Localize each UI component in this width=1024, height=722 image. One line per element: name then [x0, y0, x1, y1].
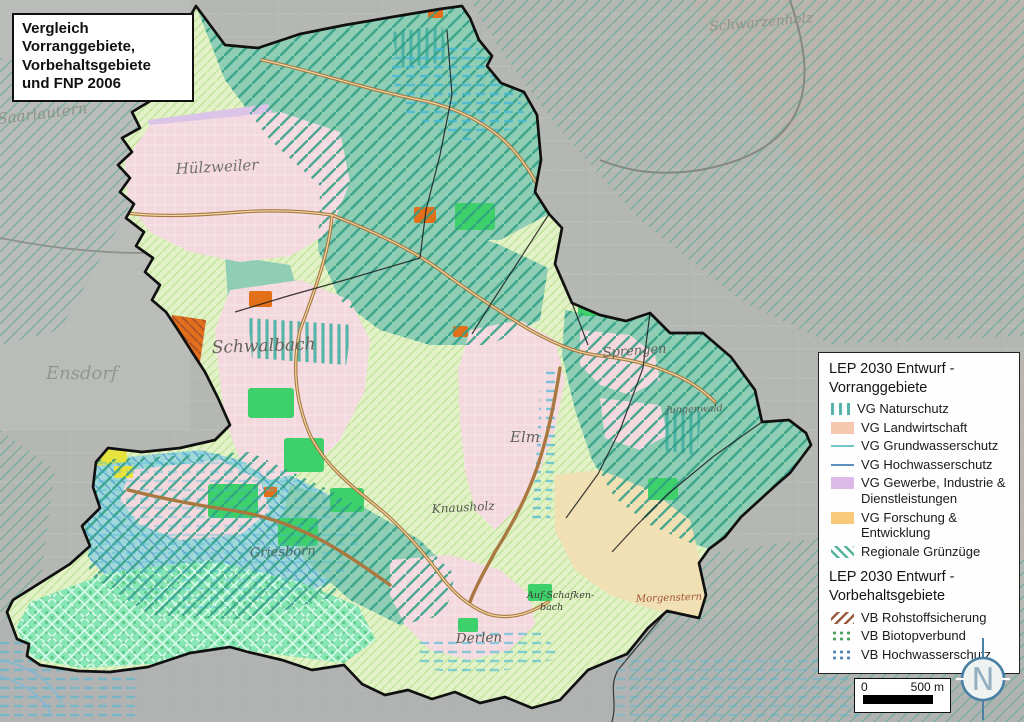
legend-item-label: VG Hochwasserschutz	[861, 457, 993, 473]
legend-item-label: Regionale Grünzüge	[861, 544, 980, 560]
map-place-label: Jungenwald	[664, 403, 723, 416]
map-place-label: Derlen	[455, 629, 503, 647]
legend-swatch-icon	[831, 512, 854, 524]
map-place-label: bach	[540, 602, 563, 613]
map-place-label: Griesborn	[250, 544, 316, 561]
legend: LEP 2030 Entwurf - Vorranggebiete VG Nat…	[818, 352, 1020, 674]
map-place-label: Auf-Schafken-	[526, 590, 594, 601]
map-place-label: Schwalbach	[211, 334, 315, 358]
north-letter: N	[971, 662, 994, 698]
north-arrow: N	[947, 636, 1019, 722]
scale-bar-rule	[863, 695, 933, 704]
legend-section-title: LEP 2030 Entwurf - Vorbehaltsgebiete	[829, 568, 1011, 605]
legend-item-label: VG Grundwasserschutz	[861, 438, 998, 454]
legend-swatch-icon	[831, 630, 854, 642]
legend-item-regionale-gruenzuege: Regionale Grünzüge	[829, 544, 1011, 560]
map-place-label: Elm	[509, 428, 540, 446]
legend-item-label: VG Naturschutz	[857, 401, 949, 417]
map-document: SaarlauternSchwarzenholzEnsdorfHülzweile…	[0, 0, 1024, 722]
legend-item-vg-gewerbe: VG Gewerbe, Industrie & Dienstleistungen	[829, 475, 1011, 506]
map-title-line: Vergleich	[22, 20, 184, 38]
legend-section-title: LEP 2030 Entwurf - Vorranggebiete	[829, 360, 1011, 397]
scale-end-label: 500 m	[911, 680, 944, 694]
legend-item-vb-rohstoffsicherung: VB Rohstoffsicherung	[829, 610, 1011, 626]
scale-start-label: 0	[861, 680, 868, 694]
legend-item-label: VG Gewerbe, Industrie & Dienstleistungen	[861, 475, 1011, 506]
legend-item-vg-hochwasserschutz: VG Hochwasserschutz	[829, 457, 1011, 473]
legend-item-label: VB Rohstoffsicherung	[861, 610, 987, 626]
legend-swatch-icon	[831, 546, 854, 558]
legend-item-vg-grundwasserschutz: VG Grundwasserschutz	[829, 438, 1011, 454]
legend-item-vg-forschung: VG Forschung & Entwicklung	[829, 510, 1011, 541]
map-place-label: Morgenstern	[635, 592, 702, 605]
map-place-label: Ensdorf	[45, 363, 121, 384]
map-title-box: Vergleich Vorranggebiete, Vorbehaltsgebi…	[12, 13, 194, 102]
legend-swatch-icon	[831, 422, 854, 434]
scale-bar: 0 500 m	[854, 678, 951, 713]
legend-item-label: VG Forschung & Entwicklung	[861, 510, 1011, 541]
legend-swatch-icon	[831, 477, 854, 489]
legend-item-vg-landwirtschaft: VG Landwirtschaft	[829, 420, 1011, 436]
legend-swatch-icon	[831, 612, 854, 624]
map-title-line: Vorranggebiete,	[22, 38, 184, 56]
compass-icon: N	[947, 636, 1019, 722]
map-title-line: und FNP 2006	[22, 75, 184, 93]
legend-section: LEP 2030 Entwurf - Vorranggebiete VG Nat…	[829, 360, 1011, 559]
map-title-line: Vorbehaltsgebiete	[22, 57, 184, 75]
legend-item-vg-naturschutz: VG Naturschutz	[829, 401, 1011, 417]
legend-item-label: VG Landwirtschaft	[861, 420, 967, 436]
legend-swatch-icon	[831, 459, 854, 471]
legend-swatch-icon	[831, 649, 854, 661]
legend-swatch-icon	[831, 403, 850, 415]
legend-swatch-icon	[831, 440, 854, 452]
